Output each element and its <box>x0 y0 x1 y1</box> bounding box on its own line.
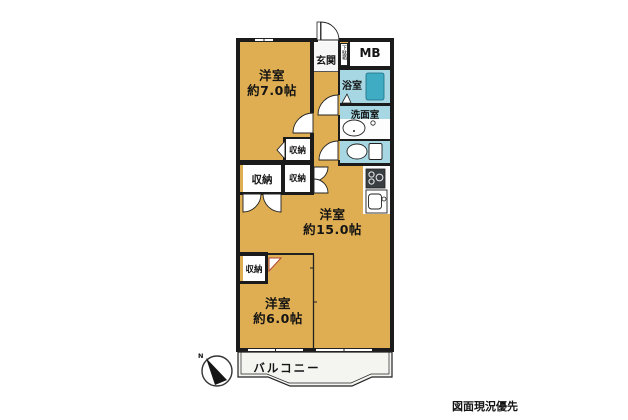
note-text: 図面現況優先 <box>452 398 518 414</box>
toilet-bowl-icon <box>347 144 367 159</box>
door-arc-closet-left-b <box>263 194 281 212</box>
room-label-living-15: 洋室 約15.0帖 <box>290 207 375 237</box>
compass-icon: N <box>198 352 232 386</box>
floor-plan: N 洋室 約7.0帖 洋室 約15.0帖 洋室 約6.0帖 玄関 下駄箱 MB … <box>0 0 628 420</box>
door-arc-washroom <box>318 95 338 115</box>
room-size: 約7.0帖 <box>236 83 308 98</box>
room-label-bedroom-7: 洋室 約7.0帖 <box>236 68 308 98</box>
compass-north-label: N <box>198 352 203 360</box>
room-name: 洋室 <box>236 68 308 83</box>
entrance-door-leaf <box>317 22 321 40</box>
entrance-door-arc <box>321 22 339 40</box>
washroom-label: 洗面室 <box>340 107 390 121</box>
closet-bedroom-label: 収納 <box>241 263 267 275</box>
stove-icon <box>366 169 385 188</box>
bathroom-door-icon <box>342 94 351 103</box>
door-arc-bedroom7 <box>293 113 313 133</box>
room-size: 約6.0帖 <box>242 311 314 326</box>
meter-box-label: MB <box>350 46 390 60</box>
bathtub-icon <box>366 73 384 100</box>
toilet-tank-icon <box>369 144 382 160</box>
washbasin-drain <box>353 130 355 132</box>
door-arc-toilet <box>319 141 338 160</box>
closet-hall-left-label: 収納 <box>243 172 281 187</box>
room-name: 洋室 <box>242 296 314 311</box>
door-arc-closet-left-a <box>243 194 261 212</box>
closet-hall-right-label: 収納 <box>284 172 311 184</box>
washroom-outlet-icon <box>371 121 375 125</box>
room-name: 洋室 <box>290 207 375 222</box>
entrance-label: 玄関 <box>314 52 338 67</box>
balcony-label: バルコニー <box>244 360 330 376</box>
closet-bedroom-door-icon <box>269 258 281 271</box>
bathroom-label: 浴室 <box>342 77 362 92</box>
room-label-bedroom-6: 洋室 約6.0帖 <box>242 296 314 326</box>
washbasin-icon <box>343 120 365 136</box>
room-size: 約15.0帖 <box>290 222 375 237</box>
shoe-box-label: 下駄箱 <box>341 45 348 65</box>
door-arc-closet-right-b <box>314 179 328 193</box>
closet-hall-upper-label: 収納 <box>284 144 311 156</box>
